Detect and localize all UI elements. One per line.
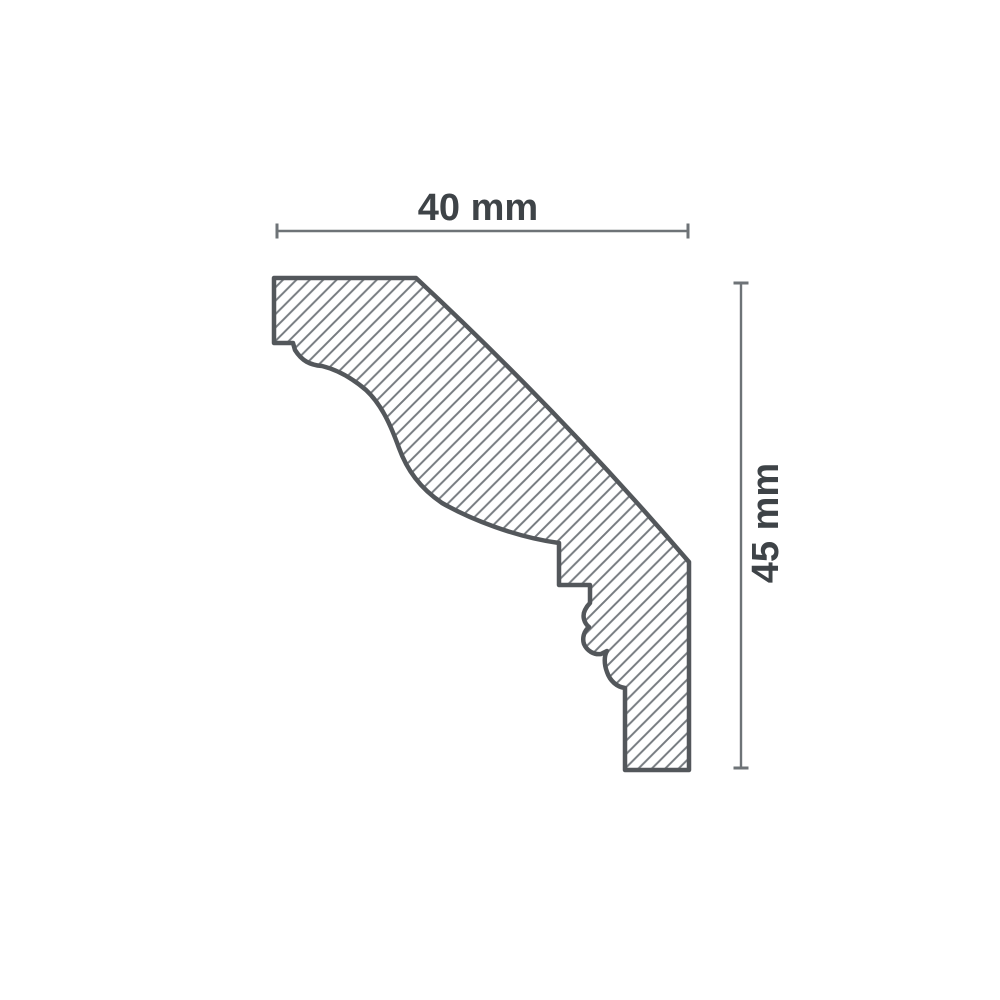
height-dimension-label: 45 mm (745, 463, 787, 583)
molding-profile-shape (274, 278, 689, 770)
cornice-profile-diagram: 40 mm 45 mm (0, 0, 1000, 1000)
width-dimension: 40 mm (277, 187, 688, 239)
profile-drawing-canvas: 40 mm 45 mm (0, 0, 1000, 1000)
width-dimension-label: 40 mm (418, 187, 538, 229)
height-dimension: 45 mm (734, 283, 788, 768)
